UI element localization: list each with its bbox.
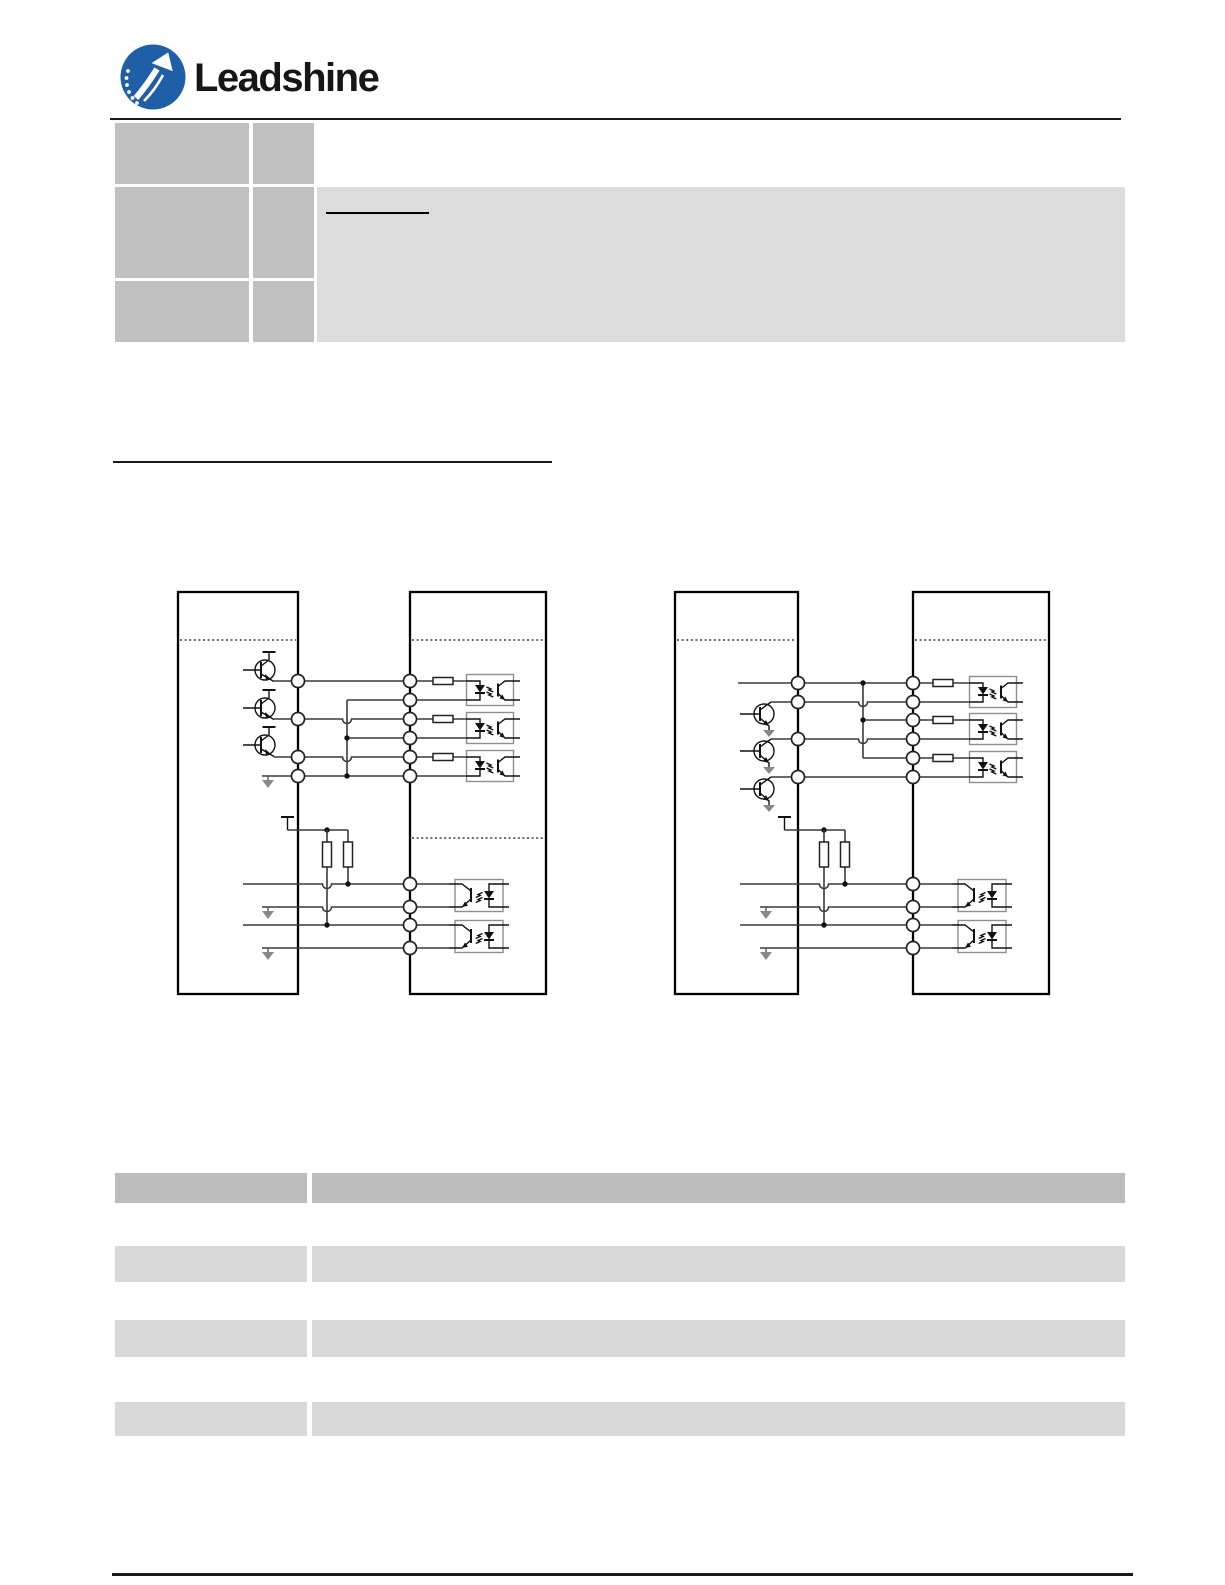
bottom-table-r2-c2: [312, 1320, 1125, 1357]
top-table-r3-c2: [253, 281, 314, 342]
top-table-r3-c1: [115, 281, 249, 342]
header-rule: [110, 118, 1121, 120]
controller-transistors: [740, 702, 775, 812]
top-table-r2-c1: [115, 187, 249, 278]
connection-diagram-left: [170, 580, 560, 1005]
leadshine-logo-icon: [119, 43, 187, 111]
bottom-table-header-c1: [115, 1173, 307, 1203]
terminals-right-diagram: [792, 677, 920, 955]
output-section: [740, 817, 952, 960]
control-signal-wires: [738, 680, 969, 777]
control-signal-wires: [262, 681, 466, 779]
bottom-table-r1-c2: [312, 1246, 1125, 1282]
section-heading-underline: [113, 461, 552, 463]
top-table-r1-c1: [115, 123, 249, 184]
top-table-r1-c2: [253, 123, 314, 184]
terminals-left-diagram: [292, 675, 417, 955]
driver-box-left: [410, 592, 546, 994]
driver-box-right: [913, 592, 1049, 994]
bottom-table-r1-c1: [115, 1246, 307, 1282]
input-resistors: [433, 678, 453, 761]
bottom-table-r3-c2: [312, 1402, 1125, 1436]
footer-rule: [112, 1573, 1133, 1576]
bottom-table-r3-c1: [115, 1402, 307, 1436]
optocouplers-left-diagram: [449, 675, 520, 953]
controller-box-left: [178, 592, 298, 994]
brand-wordmark: Leadshine: [194, 56, 378, 101]
controller-transistors: [243, 652, 276, 788]
optocouplers-right-diagram: [952, 677, 1023, 953]
bottom-table-r2-c1: [115, 1320, 307, 1357]
input-resistors: [933, 680, 953, 762]
content-underline-snippet: [326, 212, 429, 214]
bottom-table-header-c2: [312, 1173, 1125, 1203]
top-table-content-block: [317, 187, 1125, 342]
controller-box-right: [675, 592, 798, 994]
header: Leadshine: [0, 0, 1225, 122]
manual-page: { "brand": { "name": "Leadshine", "logo_…: [0, 0, 1225, 1585]
top-table-r2-c2: [253, 187, 314, 278]
connection-diagram-right: [660, 580, 1055, 1005]
